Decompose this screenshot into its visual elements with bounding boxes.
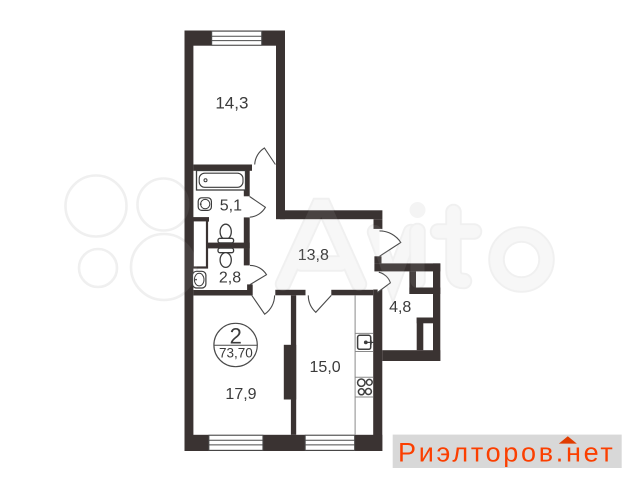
svg-text:2,8: 2,8 bbox=[219, 270, 241, 287]
svg-text:73,70: 73,70 bbox=[219, 346, 253, 361]
svg-text:14,3: 14,3 bbox=[215, 94, 248, 113]
svg-text:17,9: 17,9 bbox=[225, 386, 256, 403]
svg-text:Риэлторов.нет: Риэлторов.нет bbox=[398, 437, 615, 467]
svg-text:15,0: 15,0 bbox=[310, 359, 341, 376]
svg-text:5,1: 5,1 bbox=[220, 197, 242, 214]
svg-text:4,8: 4,8 bbox=[389, 299, 411, 316]
